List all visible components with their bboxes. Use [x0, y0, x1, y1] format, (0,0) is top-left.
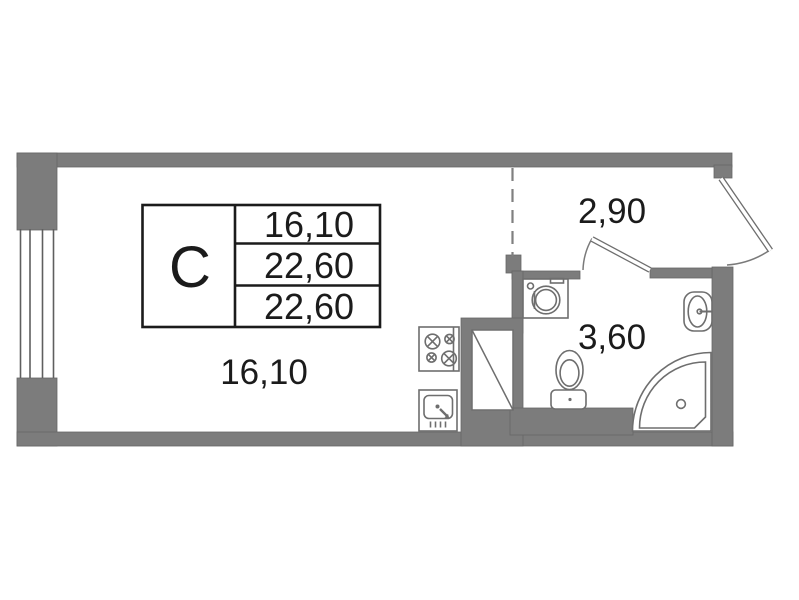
- bathroom-door: [583, 239, 650, 271]
- wall-bathroom-top-right: [650, 268, 712, 278]
- table-value-2: 22,60: [264, 245, 354, 286]
- table-value-1: 16,10: [264, 204, 354, 245]
- floorplan-canvas: C 16,10 22,60 22,60 16,10 2,90 3,60: [0, 0, 799, 600]
- washer-body: [523, 279, 568, 318]
- bathroom-area-label: 3,60: [578, 318, 646, 357]
- window: [21, 229, 54, 378]
- toilet-button: [568, 398, 571, 401]
- floor-plan: C 16,10 22,60 22,60 16,10 2,90 3,60: [0, 0, 799, 600]
- kitchen-sink-icon: [419, 390, 457, 431]
- living-area-label: 16,10: [220, 353, 308, 392]
- bathroom-door-swing-arc: [583, 239, 592, 271]
- washing-machine-icon: [523, 279, 568, 319]
- entry-door: [721, 179, 771, 266]
- bathroom-door-leaf-inner: [592, 239, 650, 270]
- entry-door-leaf-inner: [721, 179, 771, 251]
- toilet-icon: [551, 351, 586, 410]
- wall-hall-divider-block: [506, 255, 521, 273]
- shower-tray-outer: [633, 353, 712, 432]
- stove-icon: [419, 327, 459, 371]
- shower-icon: [633, 353, 712, 432]
- wall-left-upper-pier: [17, 153, 57, 230]
- bathroom-sink-icon: [684, 292, 712, 331]
- entry-door-jamb: [714, 165, 732, 178]
- table-value-3: 22,60: [264, 286, 354, 327]
- plumbing-chase: [510, 408, 633, 435]
- entry-door-swing-arc: [727, 250, 770, 265]
- vent-shaft-icon: [472, 330, 513, 410]
- hallway-area-label: 2,90: [578, 192, 646, 231]
- sink-faucet: [436, 405, 440, 409]
- wall-right: [712, 267, 733, 446]
- unit-type-label: C: [169, 235, 211, 300]
- wall-top: [17, 153, 732, 167]
